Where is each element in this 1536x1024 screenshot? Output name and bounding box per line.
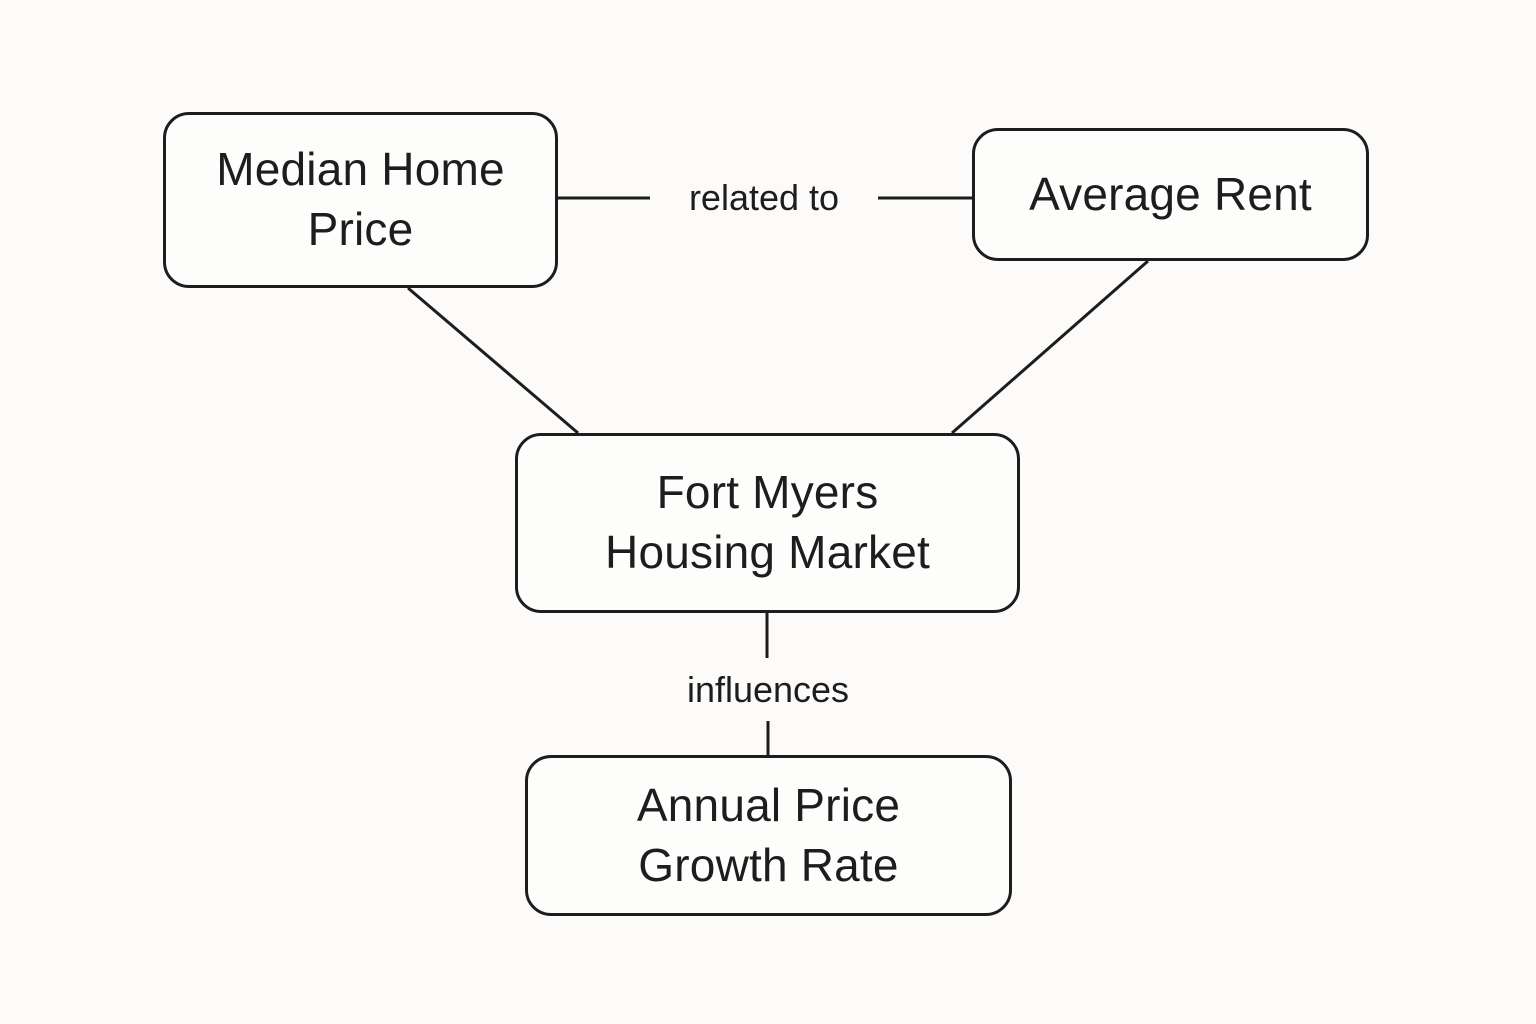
edge-rent-to-market [952,261,1148,433]
node-fort-myers-housing-market[interactable]: Fort Myers Housing Market [515,433,1020,613]
node-average-rent[interactable]: Average Rent [972,128,1369,261]
node-median-home-price-label: Median Home Price [216,140,505,260]
node-average-rent-label: Average Rent [1029,165,1312,225]
diagram-canvas: Median Home Price Average Rent Fort Myer… [0,0,1536,1024]
node-annual-price-growth-rate-label: Annual Price Growth Rate [637,776,900,896]
edge-label-influences: influences [687,669,849,711]
node-annual-price-growth-rate[interactable]: Annual Price Growth Rate [525,755,1012,916]
edge-median-to-market [408,288,578,433]
node-fort-myers-housing-market-label: Fort Myers Housing Market [605,463,930,583]
edge-label-related-to: related to [689,177,839,219]
node-median-home-price[interactable]: Median Home Price [163,112,558,288]
